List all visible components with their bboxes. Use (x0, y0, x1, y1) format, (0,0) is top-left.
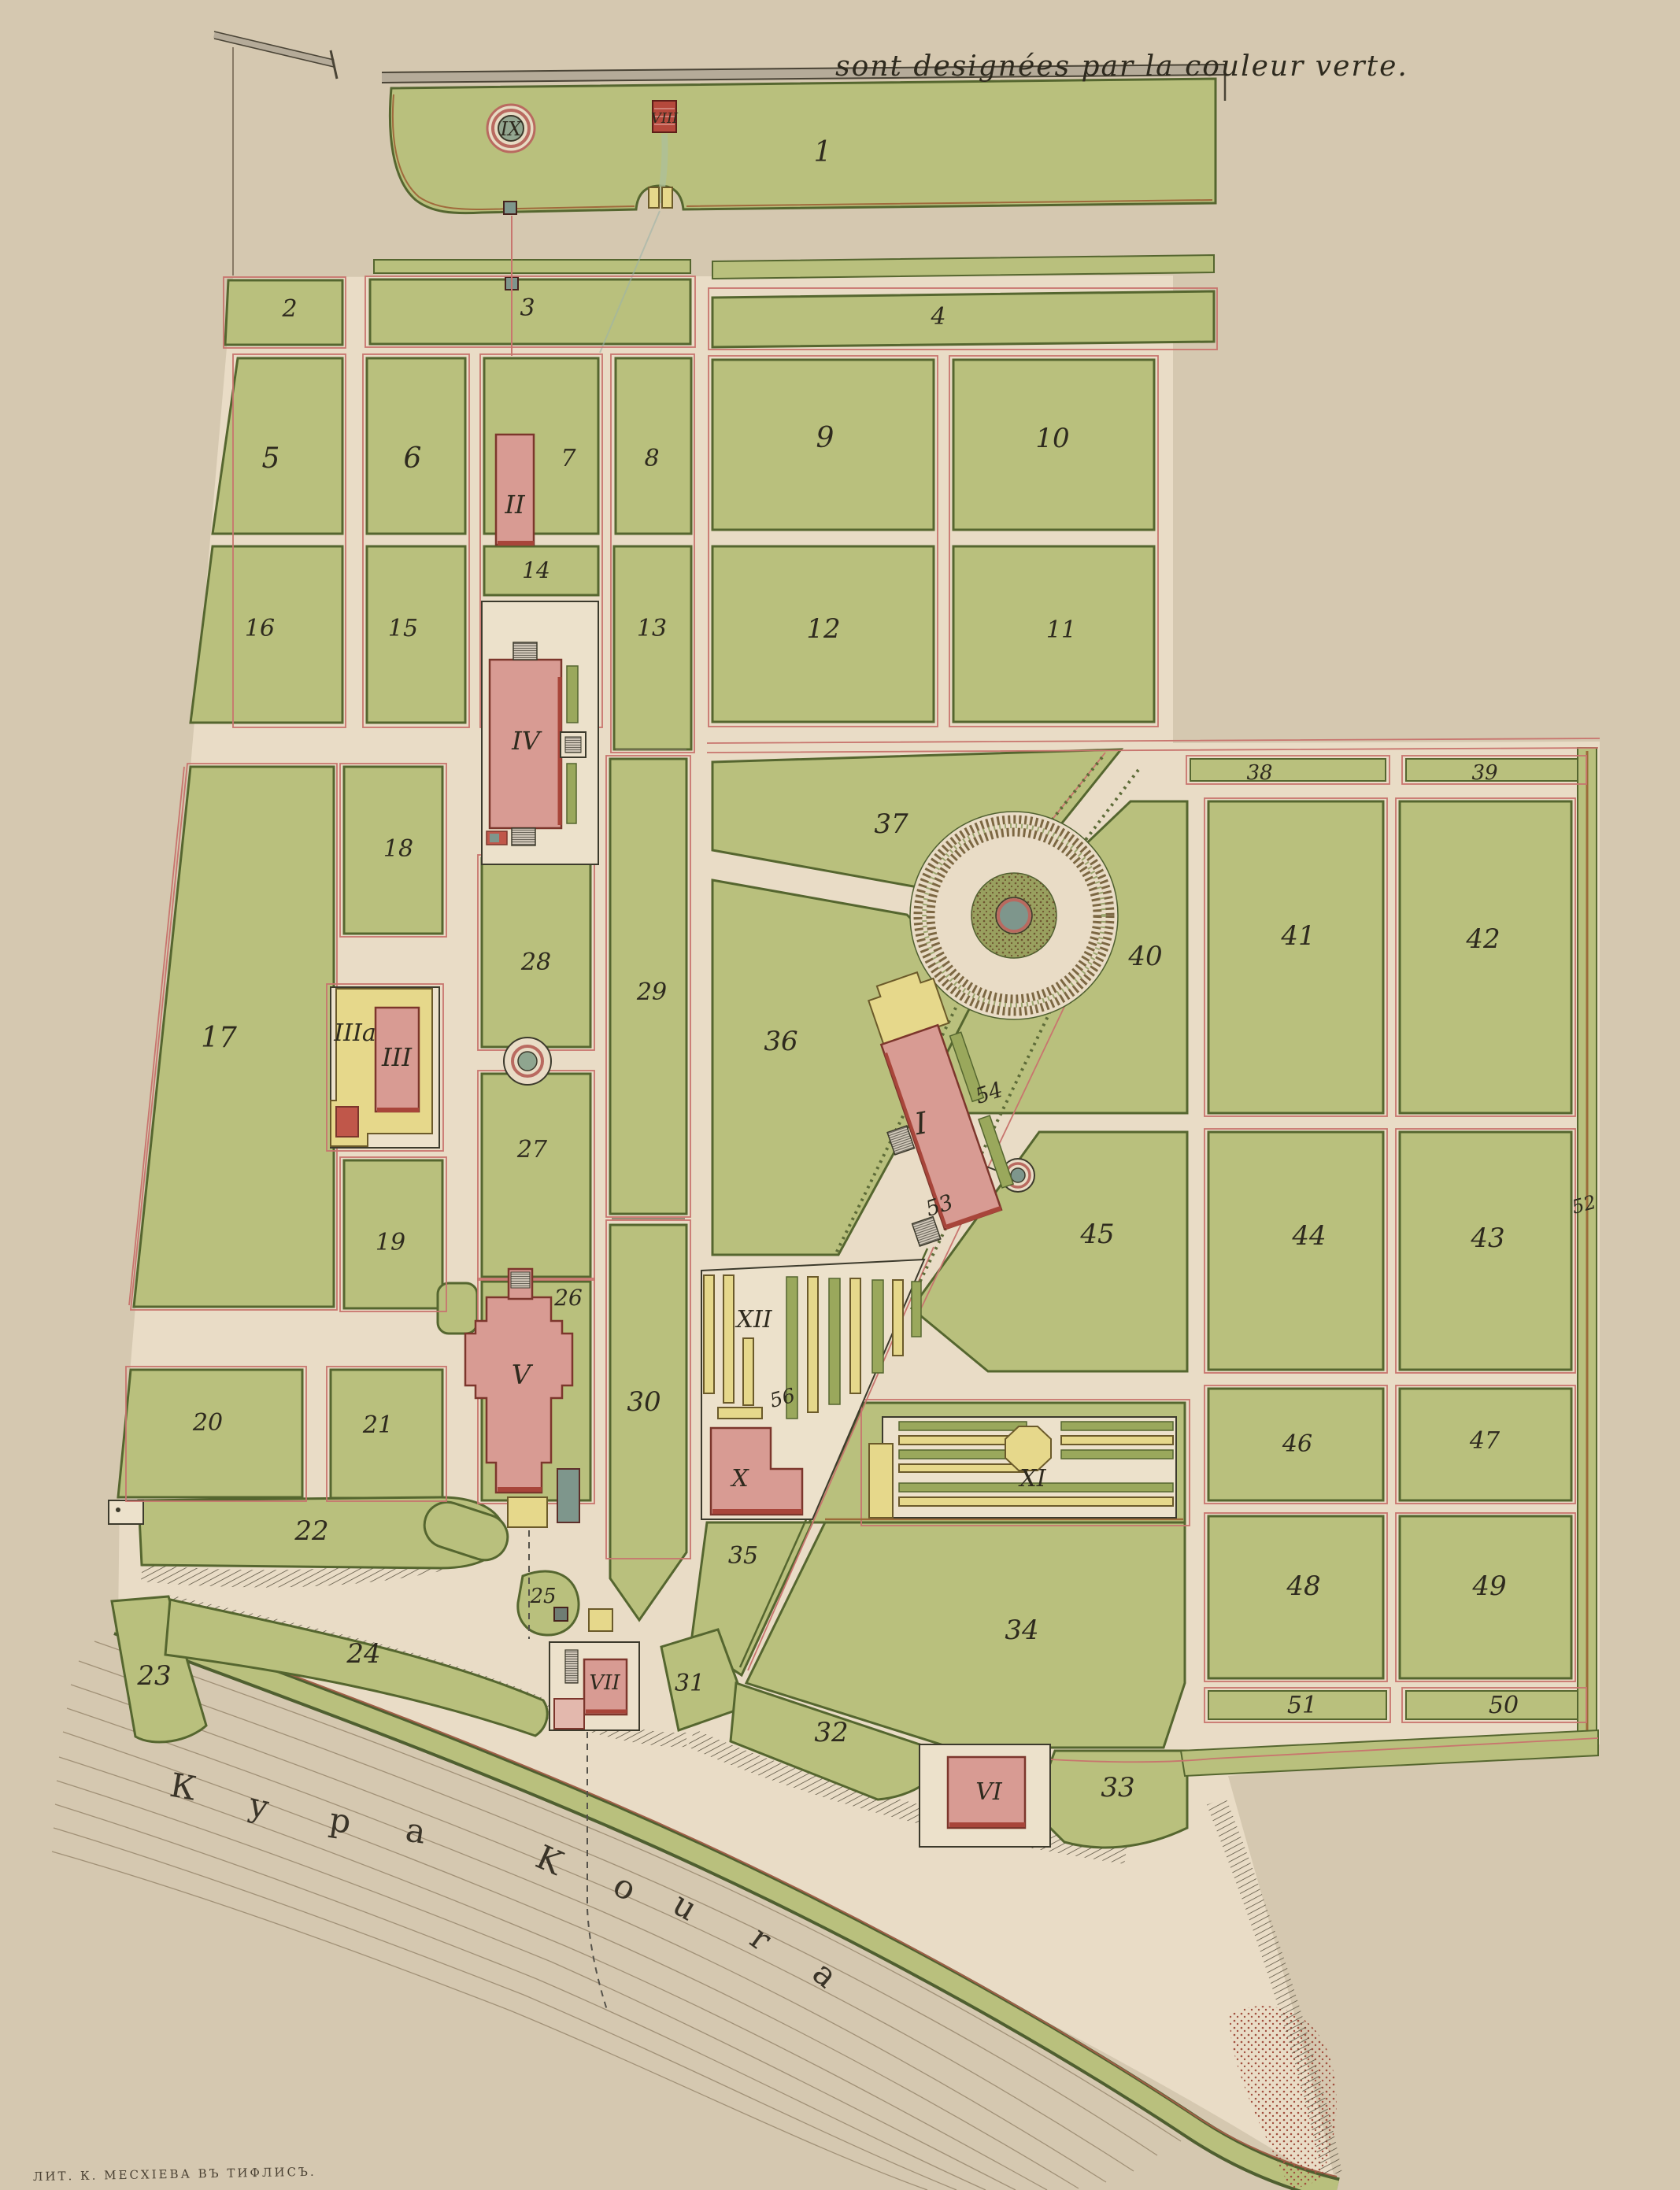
plot-label-39: 39 (1471, 761, 1497, 785)
seed-bed (743, 1338, 753, 1405)
steps-yellow (649, 187, 659, 208)
plot-label-38: 38 (1246, 761, 1272, 785)
plot-label-40: 40 (1127, 941, 1162, 972)
building-IV-annex (512, 828, 535, 845)
plot-label-19: 19 (376, 1229, 405, 1256)
plot-label-42: 42 (1465, 923, 1500, 955)
gate-square (504, 202, 516, 214)
plot-label-28: 28 (520, 949, 551, 976)
greenhouse-bed (1061, 1422, 1173, 1430)
building-V-tower-annex (511, 1272, 530, 1288)
plot-label-43: 43 (1470, 1223, 1504, 1254)
garden-plan-svg: 1234567891011121314151617181920212223242… (0, 0, 1680, 2190)
fountain-basin (998, 900, 1030, 931)
plot-label-45: 45 (1079, 1219, 1114, 1250)
plot-label-17: 17 (201, 1022, 237, 1054)
plot-label-27: 27 (516, 1136, 548, 1163)
plot-label-9: 9 (816, 422, 834, 454)
building-IV-side-annex (565, 737, 581, 753)
plot-label-24: 24 (346, 1638, 380, 1670)
plot-label-25: 25 (529, 1585, 556, 1608)
plot-label-2: 2 (281, 295, 297, 323)
greenhouse-bed (1061, 1436, 1173, 1445)
plot-label-21: 21 (362, 1411, 393, 1439)
plot-label-50: 50 (1489, 1692, 1519, 1719)
plot-label-7: 7 (561, 445, 576, 472)
building-III-annex (336, 1107, 358, 1137)
plot-label-3: 3 (520, 294, 535, 322)
fountain-27 (504, 1038, 551, 1085)
plot-label-20: 20 (192, 1409, 223, 1437)
plot-label-48: 48 (1286, 1570, 1320, 1602)
building-VII-yellow-annex (589, 1609, 612, 1631)
greenhouse-bed (1061, 1450, 1173, 1459)
plot-label-11: 11 (1046, 616, 1076, 644)
gate-structure (109, 1500, 143, 1524)
building-label-II: II (504, 490, 526, 520)
building-label-IIIa: IIIa (333, 1019, 376, 1047)
plot-label-12: 12 (806, 613, 840, 645)
plot-label-14: 14 (522, 557, 550, 583)
plot-label-23: 23 (136, 1660, 171, 1692)
plot-label-46: 46 (1282, 1430, 1312, 1458)
plot-label-37: 37 (874, 808, 908, 840)
greenhouse-bed (899, 1464, 1027, 1472)
small-building-25 (554, 1607, 568, 1621)
plot-label-4: 4 (930, 303, 945, 331)
pavilion-octagon (1005, 1426, 1051, 1470)
plot-label-26: 26 (553, 1285, 583, 1311)
building-label-VIII: VIII (651, 110, 679, 127)
map-caption: sont designées par la couleur verte. (835, 50, 1408, 83)
hedge-strip (567, 764, 576, 823)
greenhouse-bed (899, 1422, 1027, 1430)
building-V-teal-annex (557, 1469, 579, 1522)
plot-label-22: 22 (294, 1515, 328, 1547)
plot-42-area (1400, 801, 1571, 1113)
plot-41-area (1208, 801, 1383, 1113)
plot-label-5: 5 (262, 442, 280, 475)
plot-label-44: 44 (1291, 1220, 1326, 1252)
nursery-strip (374, 260, 690, 273)
seed-bed (704, 1275, 714, 1393)
plot-1-group (390, 79, 1216, 214)
building-label-XI: XI (1018, 1465, 1046, 1493)
building-label-XII: XII (735, 1306, 772, 1334)
plot-label-36: 36 (764, 1026, 797, 1057)
plot-label-34: 34 (1005, 1615, 1038, 1646)
plot-label-32: 32 (814, 1717, 848, 1748)
fountain-basin (1011, 1168, 1025, 1182)
plot-label-6: 6 (404, 442, 422, 475)
plot-label-31: 31 (675, 1670, 705, 1697)
plot-label-15: 15 (388, 615, 418, 642)
plot-label-10: 10 (1035, 423, 1069, 454)
building-label-IX: IX (500, 118, 522, 140)
hedge-blob (438, 1283, 477, 1334)
seed-bed (850, 1278, 860, 1393)
building-IV-outbuilding-core (490, 834, 499, 842)
seed-bed (723, 1275, 734, 1403)
seed-bed (872, 1280, 883, 1373)
building-VII-annex (554, 1699, 584, 1729)
plot-13-area (614, 546, 691, 749)
greenhouse-building (869, 1444, 893, 1518)
plot-label-51: 51 (1287, 1692, 1317, 1719)
plot-label-47: 47 (1469, 1427, 1501, 1455)
plot-label-13: 13 (637, 615, 667, 642)
seed-bed (829, 1278, 840, 1404)
seed-bed (808, 1277, 818, 1412)
plot-label-29: 29 (636, 978, 667, 1006)
building-label-IV: IV (511, 726, 542, 756)
plot-30-area (610, 1225, 686, 1620)
gate-dot (116, 1507, 120, 1512)
plot-label-49: 49 (1471, 1570, 1506, 1602)
building-label-VII: VII (589, 1671, 620, 1695)
plot-label-1: 1 (814, 136, 832, 168)
map-sheet: 1234567891011121314151617181920212223242… (0, 0, 1680, 2190)
plot-label-8: 8 (644, 445, 659, 472)
plot-38-area (1190, 759, 1386, 781)
building-V-yellow-annex (508, 1497, 547, 1527)
seed-bed (893, 1280, 903, 1356)
building-label-V: V (512, 1360, 534, 1391)
plot-label-16: 16 (245, 615, 275, 642)
hedge-strip (567, 666, 578, 723)
greenhouse-bed (899, 1497, 1173, 1506)
circular-parterre (910, 812, 1118, 1019)
building-label-VI: VI (975, 1778, 1003, 1806)
frame-bed (718, 1408, 762, 1419)
plot-label-33: 33 (1101, 1772, 1134, 1803)
building-label-X: X (730, 1465, 749, 1493)
fountain-basin (518, 1052, 537, 1071)
building-label-III: III (381, 1042, 413, 1072)
seed-bed (912, 1282, 921, 1337)
building-IV-annex (513, 642, 537, 660)
plot-label-41: 41 (1280, 920, 1315, 952)
steps-yellow (662, 187, 672, 208)
plot-27-area (482, 1074, 590, 1277)
plot-label-30: 30 (627, 1386, 661, 1418)
plot-4-area (712, 291, 1214, 347)
plot-label-35: 35 (728, 1542, 758, 1570)
plot-label-18: 18 (383, 835, 413, 863)
building-VII-shed (565, 1650, 578, 1683)
